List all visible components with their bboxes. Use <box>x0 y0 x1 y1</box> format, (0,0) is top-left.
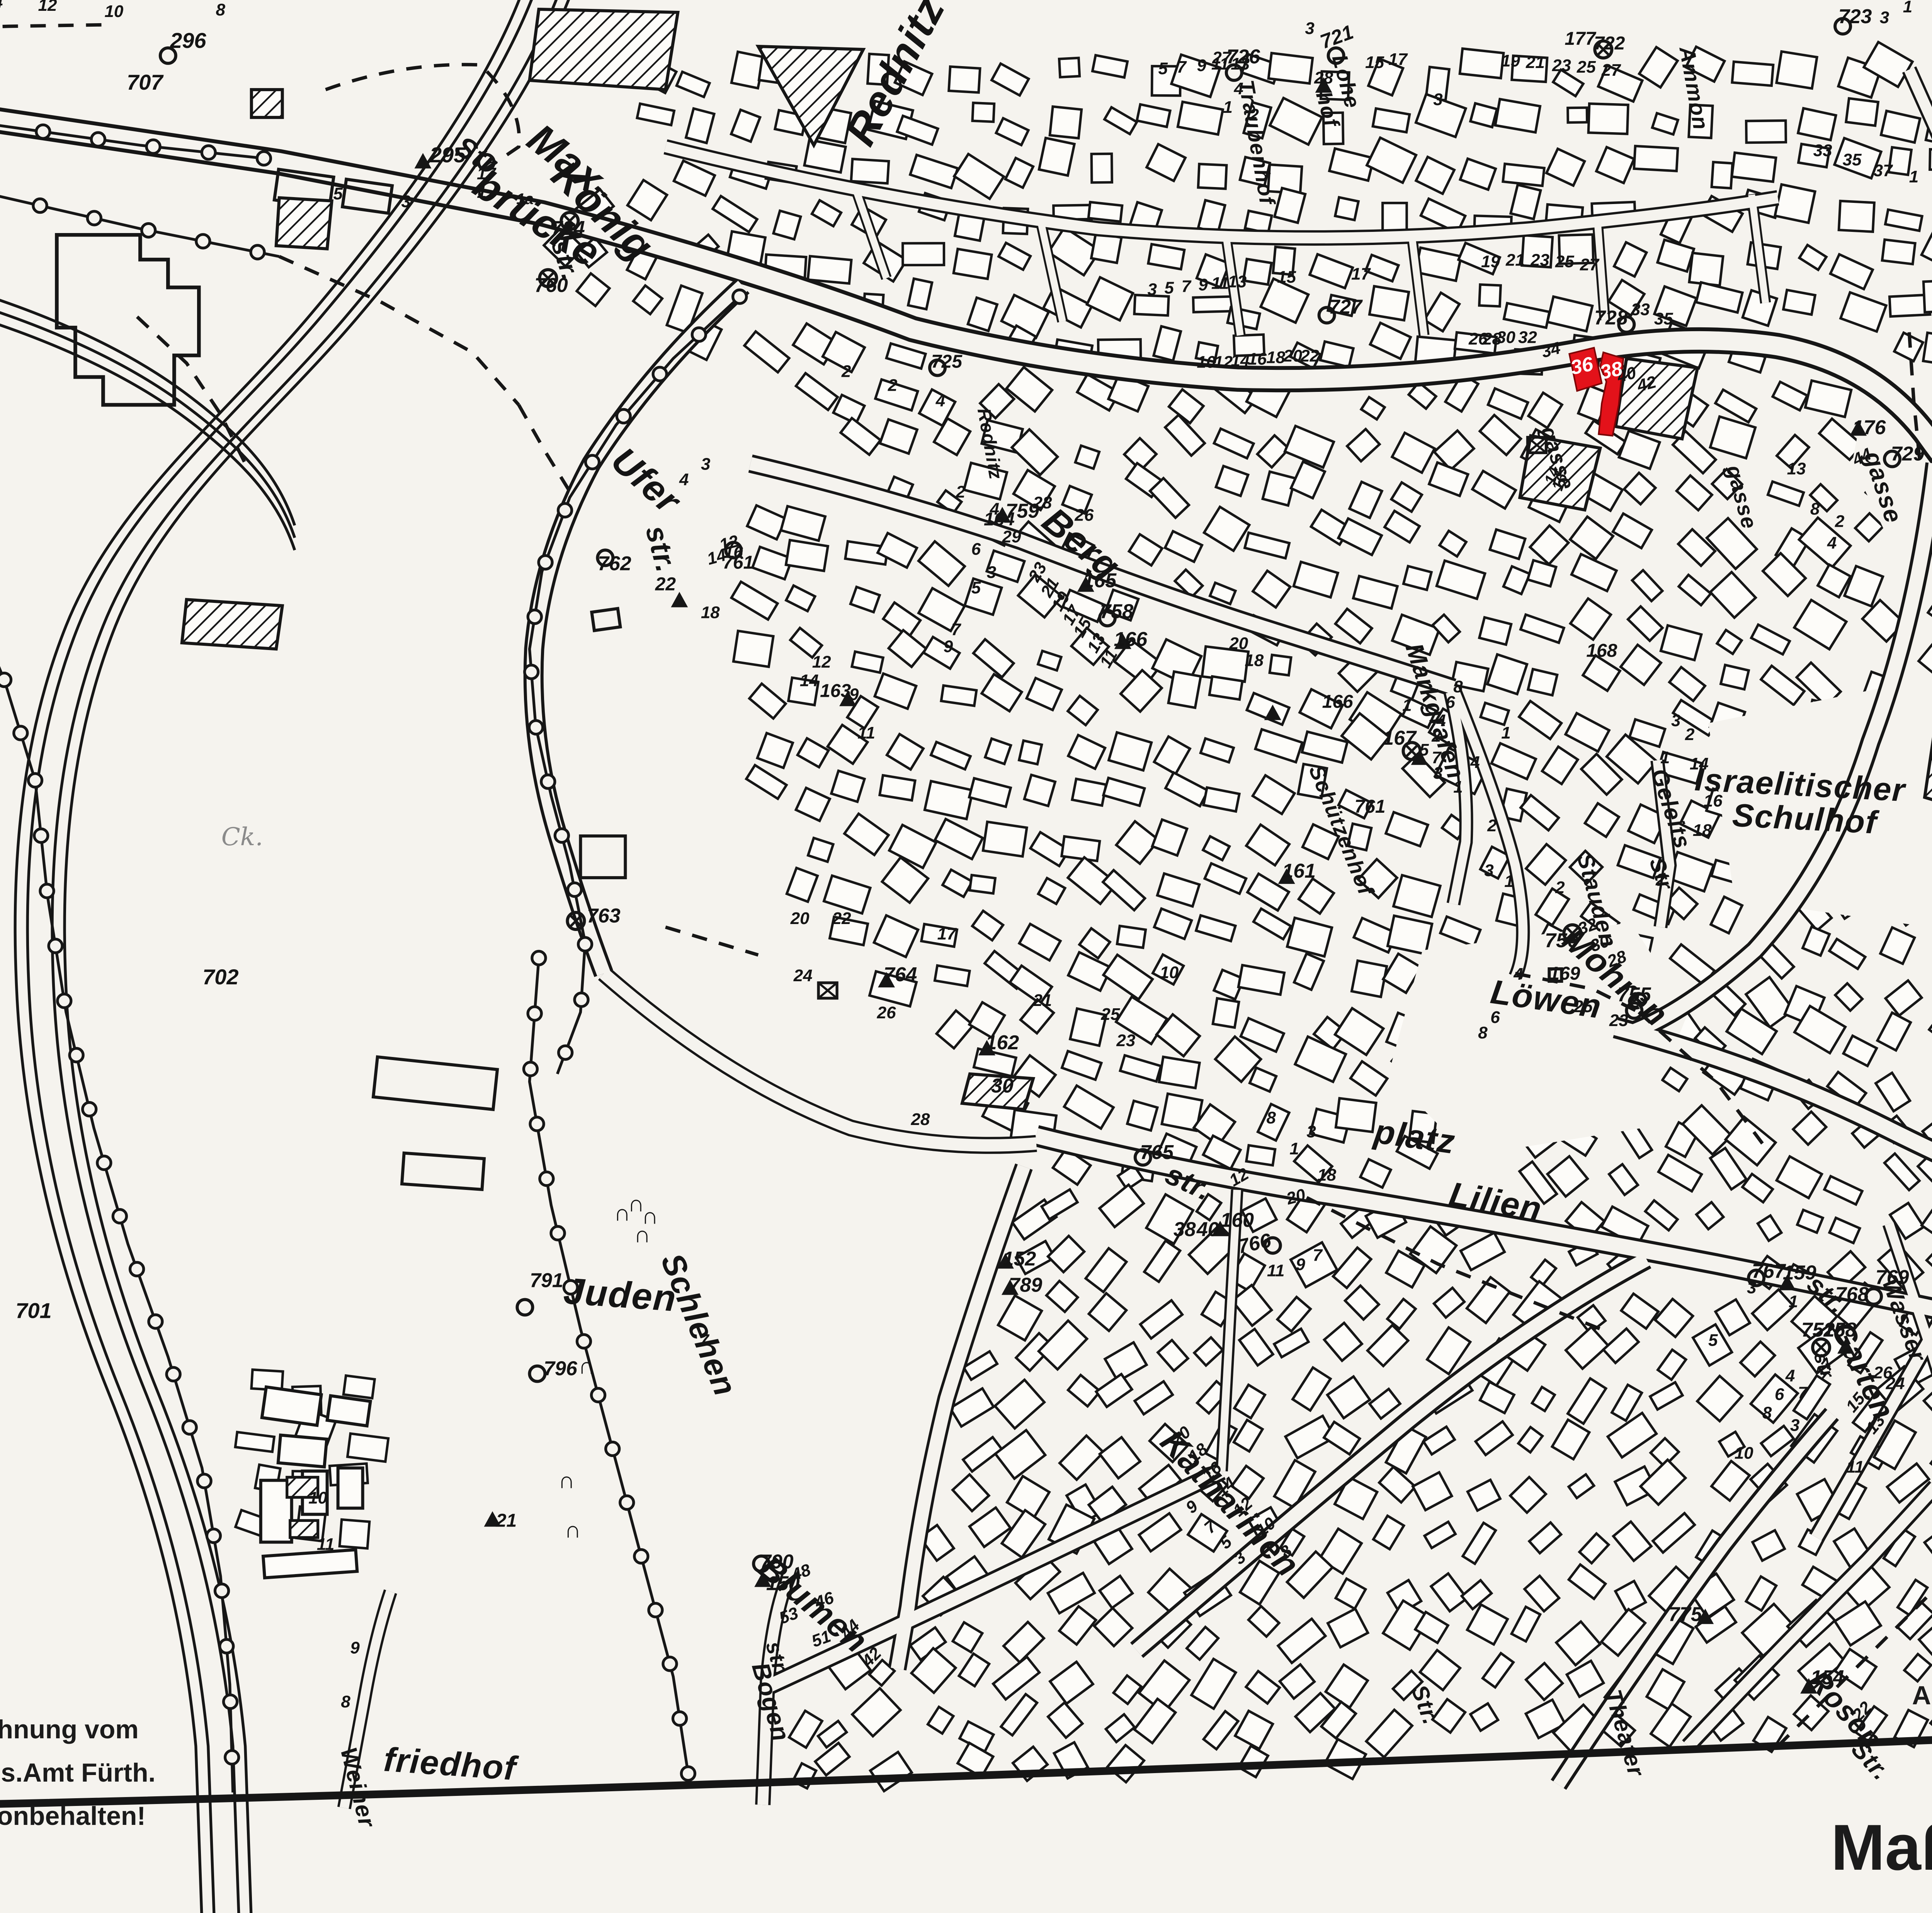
survey-number-label: 725 <box>931 352 963 372</box>
survey-number-label: 160 <box>1220 1209 1254 1232</box>
house-number-label: 9 <box>944 637 953 656</box>
house-number-label: 14 <box>0 0 3 12</box>
survey-number-label: 775 <box>1668 1603 1702 1625</box>
survey-number-label: 167 <box>1383 727 1417 749</box>
survey-number-label: 154 <box>1811 1666 1844 1689</box>
house-number-label: 12 <box>1214 353 1233 372</box>
survey-number-label: 296 <box>170 28 206 53</box>
survey-number-label: 762 <box>598 552 631 575</box>
handwriting-note: Ck. <box>221 823 263 851</box>
house-number-label: 6 <box>971 540 981 558</box>
red-parcel-number: 38 <box>1598 357 1624 384</box>
house-number-label: 7 <box>1182 277 1192 296</box>
house-number-label: 3 <box>1433 764 1442 783</box>
house-number-label: 19 <box>1481 252 1500 271</box>
house-number-label: 23 <box>1609 1011 1628 1030</box>
survey-number-label: 166 <box>1322 691 1353 712</box>
house-number-label: 2 <box>1487 816 1497 835</box>
house-number-label: 27 <box>1580 255 1600 274</box>
house-number-label: 4 <box>990 499 999 518</box>
house-number-label: 3 <box>1484 861 1493 880</box>
house-number-label: 15 <box>1277 268 1296 287</box>
house-number-label: 16 <box>1248 350 1267 369</box>
house-number-label: 8 <box>1762 1404 1772 1423</box>
survey-number-label: 702 <box>202 965 238 989</box>
house-number-label: 10 <box>104 2 123 21</box>
street-name-label: Schulhof <box>1731 797 1880 841</box>
house-number-label: 5 <box>971 578 981 597</box>
house-number-label: 14 <box>1690 754 1709 773</box>
house-number-label: 5 <box>333 184 343 203</box>
house-number-label: 5 <box>1419 740 1429 759</box>
house-number-label: 14 <box>800 671 819 690</box>
survey-number-label: 165 <box>1083 569 1117 592</box>
house-number-label: 28 <box>911 1110 930 1129</box>
survey-number-label: 166 <box>1114 628 1148 650</box>
house-number-label: 21 <box>1032 991 1052 1010</box>
house-number-label: 30 <box>991 1075 1014 1097</box>
house-number-label: 7 <box>951 620 962 639</box>
survey-number-label: 769 <box>1876 1266 1909 1289</box>
house-number-label: 25 <box>1555 252 1574 271</box>
house-number-label: 14 <box>1231 351 1250 370</box>
house-number-label: 16 <box>1704 791 1723 810</box>
house-number-label: 13 <box>1787 460 1806 478</box>
house-number-label: 5 <box>1708 1331 1718 1350</box>
house-number-label: 11 <box>857 723 875 742</box>
house-number-label: 9 <box>1296 1255 1305 1274</box>
house-number-label: 1 <box>1453 778 1463 797</box>
survey-number-label: 765 <box>1140 1141 1174 1164</box>
house-number-label: 6 <box>1446 693 1455 711</box>
house-number-label: 20 <box>1229 634 1248 653</box>
house-number-label: 30 <box>1497 328 1515 347</box>
survey-number-label: 789 <box>1009 1274 1043 1297</box>
house-number-label: 16 <box>724 543 743 562</box>
house-number-label: 1 <box>1504 872 1514 891</box>
house-number-label: 35 <box>1654 310 1673 328</box>
house-number-label: 3 <box>701 455 710 474</box>
house-number-label: 3 <box>1747 1278 1756 1297</box>
margin-text: Originalzeichnung vom <box>0 1715 139 1744</box>
survey-number-label: 728 <box>1594 307 1628 329</box>
house-number-label: 8 <box>1810 499 1820 518</box>
house-number-label: 3 <box>1671 711 1680 730</box>
house-number-label: 4 <box>1827 533 1837 552</box>
house-number-label: 12 <box>812 652 831 671</box>
house-number-label: 4 <box>1513 965 1523 984</box>
house-number-label: 1 <box>1223 98 1232 117</box>
house-number-label: 12 <box>38 0 57 15</box>
house-number-label: 26 <box>1074 505 1094 524</box>
house-number-label: 9 <box>1197 56 1207 75</box>
survey-number-label: 701 <box>15 1299 51 1323</box>
house-number-label: 10 <box>1197 353 1216 372</box>
house-number-label: 33 <box>1813 141 1832 160</box>
house-number-label: 1 <box>477 183 486 202</box>
house-number-label: 9 <box>1199 276 1208 294</box>
house-number-label: 2 <box>888 376 897 395</box>
survey-number-label: 295 <box>429 143 466 167</box>
house-number-label: 3 <box>1148 280 1157 299</box>
house-number-label: 10 <box>308 1488 327 1507</box>
house-number-label: 3 <box>1433 90 1442 109</box>
house-number-label: 2 <box>1835 512 1844 531</box>
house-number-label: 20 <box>790 909 810 928</box>
survey-number-label: 22 <box>655 574 676 594</box>
house-number-label: 22 <box>1300 347 1319 366</box>
survey-number-label: 163 <box>820 681 851 701</box>
house-number-label: 3 <box>1880 8 1889 27</box>
house-number-label: 2 <box>1249 106 1259 124</box>
house-number-label: 23 <box>1530 251 1549 270</box>
house-number-label: 4 <box>1470 753 1480 772</box>
survey-number-label: 176 <box>1852 417 1886 439</box>
house-number-label: 1 <box>1909 167 1918 186</box>
house-number-label: 17 <box>1388 50 1408 69</box>
house-number-label: 8 <box>341 1692 350 1711</box>
house-number-label: 1 <box>1501 723 1510 742</box>
house-number-label: 18 <box>701 603 720 622</box>
house-number-label: 6 <box>1490 1008 1500 1027</box>
survey-number-label: 761 <box>1355 797 1386 817</box>
house-number-label: 35 <box>1843 150 1862 169</box>
survey-number-label: 159 <box>1783 1262 1816 1284</box>
house-number-label: 11 <box>1267 1261 1285 1280</box>
house-number-label: 4 <box>935 391 945 410</box>
house-number-label: 28 <box>1314 68 1333 87</box>
house-number-label: 9 <box>849 685 859 704</box>
margin-text: Städt.Vermess.Amt Fürth. <box>0 1758 155 1787</box>
house-number-label: 8 <box>216 0 226 19</box>
house-number-label: 24 <box>1886 1374 1905 1393</box>
house-number-label: 37 <box>1874 161 1893 180</box>
house-number-label: 1 <box>1402 696 1412 715</box>
house-number-label: 1 <box>1903 0 1912 16</box>
house-number-label: 11 <box>317 1535 335 1554</box>
house-number-label: 6 <box>1775 1385 1784 1404</box>
survey-number-label: 755 <box>1617 984 1651 1006</box>
house-number-label: 4 <box>1785 1367 1795 1385</box>
house-number-label: 2 <box>956 482 965 501</box>
house-number-label: 10 <box>1160 963 1179 982</box>
house-number-label: 3 <box>1306 1122 1316 1141</box>
house-number-label: 7 <box>1177 58 1187 77</box>
house-number-label: 18 <box>1266 348 1285 367</box>
house-number-label: 23 <box>1552 56 1571 75</box>
survey-number-label: 729 <box>1891 443 1925 465</box>
survey-number-label: 756 <box>1545 929 1579 952</box>
house-number-label: 9 <box>350 1638 360 1657</box>
house-number-label: 7 <box>1313 1246 1323 1265</box>
gravestone-icon: ∩ <box>578 1353 595 1379</box>
house-number-label: 3 <box>1790 1416 1799 1435</box>
house-number-label: 26 <box>877 1003 896 1022</box>
house-number-label: 2 <box>1431 727 1441 745</box>
gravestone-icon: ∩ <box>558 1467 575 1493</box>
house-number-label: 11 <box>1846 1457 1864 1476</box>
house-number-label: 2 <box>1555 878 1565 897</box>
survey-number-label: 764 <box>884 963 917 986</box>
house-number-label: 25 <box>1577 58 1596 77</box>
house-number-label: 4 <box>1233 79 1243 98</box>
margin-text: Maßstab 1 <box>1831 1811 1932 1884</box>
house-number-label: 10 <box>1735 1443 1753 1462</box>
survey-number-label: 758 <box>1100 600 1133 623</box>
house-number-label: 17 <box>1351 265 1371 284</box>
survey-number-label: 760 <box>534 274 568 297</box>
survey-number-label: 168 <box>1586 640 1617 661</box>
house-number-label: 5 <box>1165 279 1174 298</box>
house-number-label: 18 <box>1693 821 1712 840</box>
house-number-label: 18 <box>1245 651 1264 670</box>
gravestone-icon: ∩ <box>634 1222 651 1248</box>
house-number-label: 7 <box>1798 1384 1808 1402</box>
house-number-label: 19 <box>1501 51 1520 70</box>
house-number-label: 33 <box>1631 300 1650 319</box>
house-number-label: 11 <box>1211 274 1229 293</box>
house-number-label: 23 <box>1116 1031 1135 1050</box>
survey-number-label: 791 <box>530 1270 563 1292</box>
house-number-label: 18 <box>1317 1166 1336 1185</box>
house-number-label: 28 <box>1032 493 1052 512</box>
survey-number-label: 796 <box>544 1358 578 1380</box>
house-number-label: 1a <box>516 191 533 208</box>
house-number-label: 20 <box>1283 347 1302 366</box>
house-number-label: 3 <box>401 192 410 211</box>
house-number-label: 29 <box>1002 527 1021 546</box>
house-number-label: 13 <box>1231 54 1250 73</box>
house-number-label: 8 <box>1266 1108 1276 1127</box>
house-number-label: 7 <box>699 1331 710 1350</box>
map-canvas: WürzburgerStr.MaxbrückeKönigstr.RednitzR… <box>0 0 1932 1913</box>
house-number-label: 21 <box>1526 53 1545 72</box>
house-number-label: 25 <box>1573 997 1593 1016</box>
survey-number-label: 152 <box>1003 1248 1036 1270</box>
margin-text: Anschlußblatt N <box>1912 1681 1932 1710</box>
house-number-label: 17 <box>937 924 957 943</box>
house-number-label: 27 <box>1601 61 1621 80</box>
house-number-label: 24 <box>793 966 813 985</box>
house-number-label: 3 <box>987 563 996 582</box>
survey-number-label: 723 <box>1838 5 1872 28</box>
house-number-label: 5 <box>1158 59 1168 78</box>
map-sheet: WürzburgerStr.MaxbrückeKönigstr.RednitzR… <box>0 0 1932 1913</box>
gravestone-icon: ∩ <box>565 1516 581 1542</box>
survey-number-label: 21 <box>496 1510 517 1531</box>
house-number-label: 11 <box>1211 54 1229 73</box>
house-number-label: 1 <box>1660 748 1670 767</box>
survey-number-label: 724 <box>551 217 585 240</box>
house-number-label: 22 <box>832 909 851 928</box>
survey-number-label: 169 <box>1549 963 1580 984</box>
house-number-label: 1 <box>1789 1292 1798 1311</box>
house-number-label: 25 <box>1100 1005 1120 1024</box>
house-number-label: 2 <box>1655 870 1665 889</box>
survey-number-label: 162 <box>986 1031 1019 1054</box>
house-number-label: 15 <box>1365 53 1384 72</box>
house-number-label: 8 <box>1478 1023 1488 1042</box>
survey-number-label: 177 <box>1565 29 1596 49</box>
survey-number-label: 707 <box>127 70 164 94</box>
margin-text: Alle Rechte vonbehalten! <box>0 1801 146 1831</box>
house-number-label: 32 <box>1518 328 1537 347</box>
house-number-label: 2 <box>841 362 851 381</box>
survey-number-label: 17 <box>477 164 497 183</box>
house-number-label: 38 <box>1173 1219 1196 1241</box>
survey-number-label: 763 <box>587 905 621 927</box>
house-number-label: 40 <box>1196 1219 1219 1241</box>
house-number-label: 1 <box>1289 1139 1299 1158</box>
house-number-label: 21 <box>1505 251 1525 270</box>
survey-number-label: 722 <box>1594 33 1625 54</box>
survey-number-label: 727 <box>1328 296 1363 318</box>
survey-number-label: 161 <box>1282 860 1316 882</box>
house-number-label: 3 <box>1305 19 1314 38</box>
house-number-label: 13 <box>1228 272 1247 291</box>
survey-number-label: 768 <box>1835 1283 1869 1306</box>
survey-number-label: 158 <box>1823 1319 1857 1341</box>
house-number-label: 4 <box>679 470 689 489</box>
street-name-label: Juden <box>562 1270 678 1319</box>
survey-number-label: 790 <box>760 1550 794 1573</box>
survey-number-label: 767 <box>1752 1260 1786 1283</box>
house-number-label: 2 <box>1685 725 1694 744</box>
